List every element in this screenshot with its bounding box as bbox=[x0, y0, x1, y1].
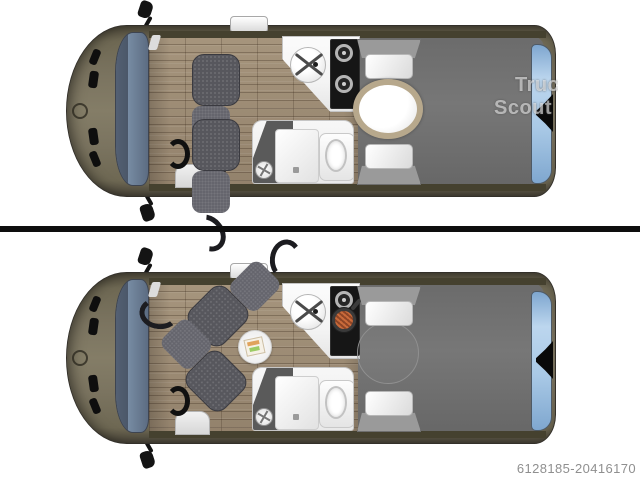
seat-base bbox=[192, 54, 240, 106]
toilet-seat bbox=[325, 139, 347, 172]
image-divider bbox=[0, 226, 640, 232]
side-mirror-icon bbox=[139, 449, 157, 469]
dashboard-shade bbox=[116, 33, 128, 185]
seat-base bbox=[192, 119, 240, 171]
windshield bbox=[115, 32, 149, 186]
dashboard-shade bbox=[116, 280, 128, 432]
stove-burner bbox=[335, 75, 353, 93]
shower-drain bbox=[293, 167, 299, 173]
watermark-line: Scout bbox=[494, 97, 552, 120]
bench-cushion bbox=[365, 301, 413, 326]
steering-wheel-icon bbox=[166, 139, 190, 169]
side-mirror-icon bbox=[139, 202, 157, 222]
map-detail bbox=[249, 346, 260, 352]
van-floorplan-bottom bbox=[66, 272, 556, 444]
bathroom bbox=[252, 120, 354, 184]
lowered-table-bed-base bbox=[357, 322, 419, 384]
bathroom-sink bbox=[255, 161, 273, 179]
listing-id-label: 6128185-20416170 bbox=[517, 461, 636, 476]
swivel-seat-driver bbox=[192, 54, 240, 106]
sink-drain bbox=[313, 309, 318, 314]
watermark: Truc Scout bbox=[440, 72, 558, 130]
steering-wheel-icon bbox=[166, 386, 190, 416]
swivel-seat-passenger bbox=[192, 119, 240, 171]
dining-table bbox=[353, 79, 423, 139]
stove-burner bbox=[335, 44, 353, 62]
brand-badge-icon bbox=[72, 350, 88, 366]
seat-backrest bbox=[183, 207, 233, 258]
frying-pan-food bbox=[335, 311, 353, 329]
watermark-line: Truc bbox=[515, 74, 558, 97]
brand-badge-icon bbox=[72, 103, 88, 119]
bathroom-sink bbox=[255, 408, 273, 426]
shower-drain bbox=[293, 414, 299, 420]
sink-drain bbox=[313, 62, 318, 67]
listing-image: Truc Scout bbox=[0, 0, 640, 480]
bathroom bbox=[252, 367, 354, 431]
bench-cushion bbox=[365, 391, 413, 416]
seat-cushion bbox=[192, 171, 230, 213]
shower-tray bbox=[275, 376, 319, 430]
shower-tray bbox=[275, 129, 319, 183]
toilet-seat bbox=[325, 386, 347, 419]
bench-cushion bbox=[365, 144, 413, 169]
bench-cushion bbox=[365, 54, 413, 79]
